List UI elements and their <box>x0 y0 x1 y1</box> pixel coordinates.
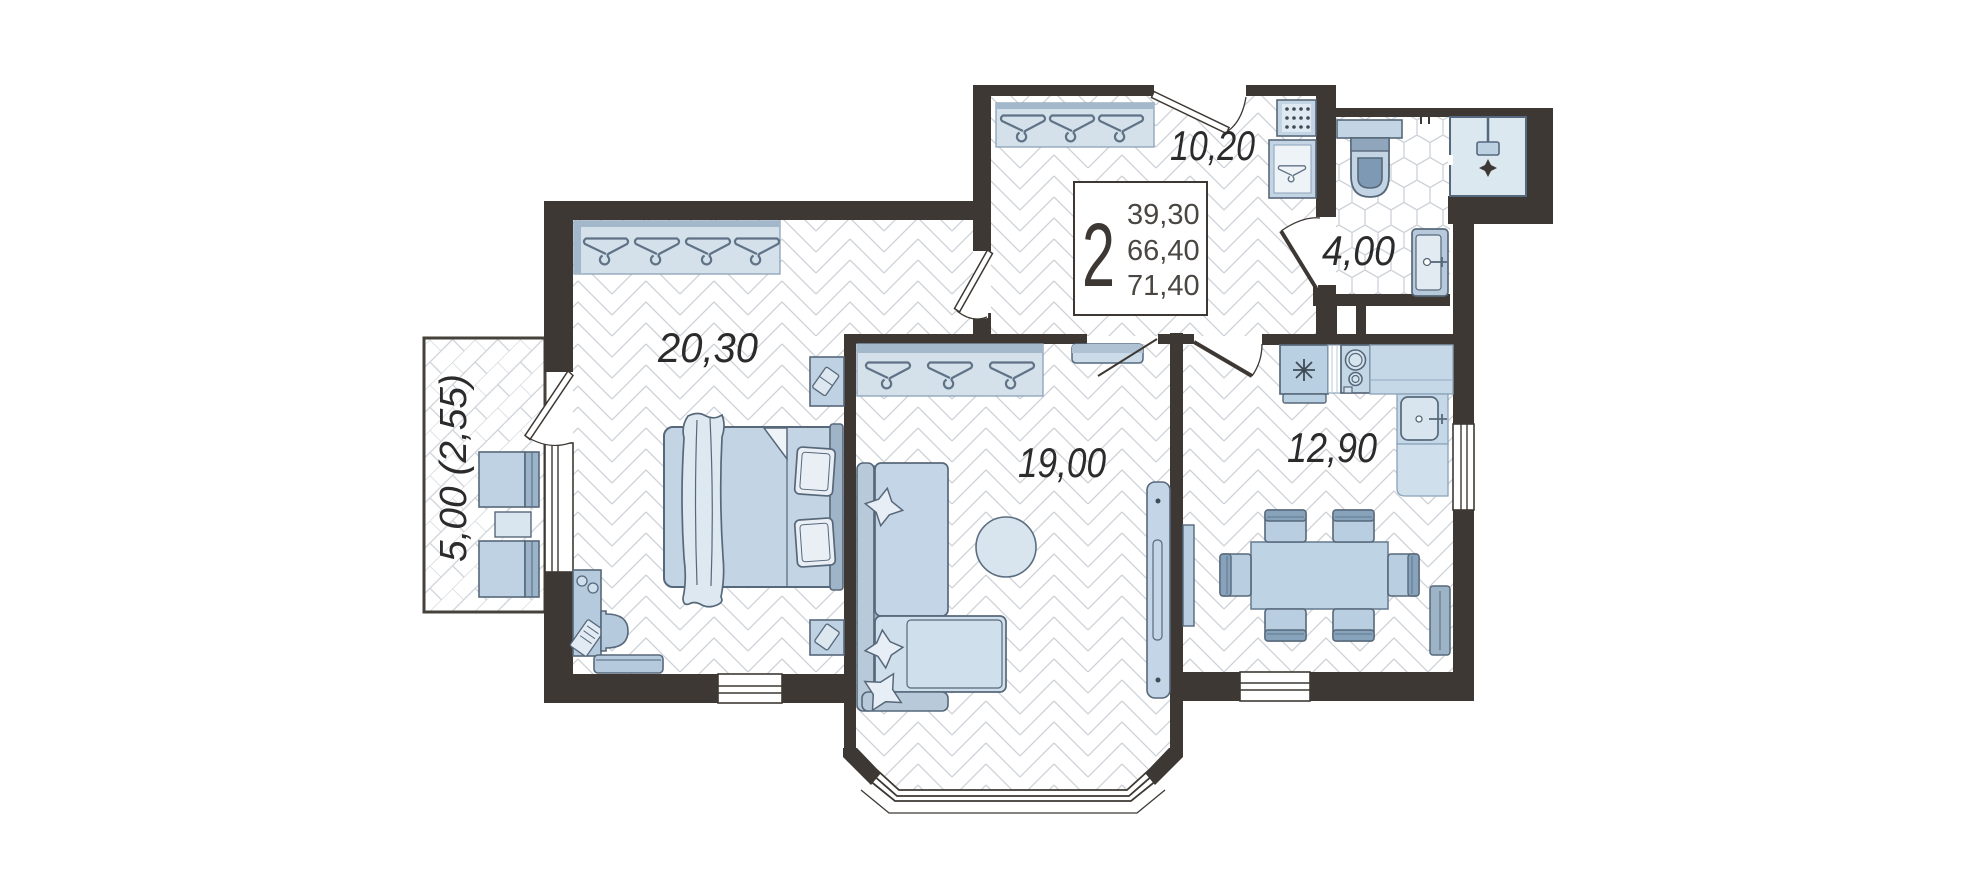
svg-text:5,00 (2,55): 5,00 (2,55) <box>433 374 475 562</box>
svg-text:2: 2 <box>1082 206 1115 306</box>
svg-text:19,00: 19,00 <box>1018 439 1107 486</box>
svg-text:4,00: 4,00 <box>1322 227 1396 274</box>
svg-text:20,30: 20,30 <box>657 324 759 371</box>
svg-text:71,40: 71,40 <box>1127 270 1200 302</box>
svg-text:12,90: 12,90 <box>1287 424 1378 471</box>
svg-text:10,20: 10,20 <box>1170 122 1256 169</box>
svg-text:39,30: 39,30 <box>1127 199 1200 231</box>
svg-text:66,40: 66,40 <box>1127 235 1200 267</box>
